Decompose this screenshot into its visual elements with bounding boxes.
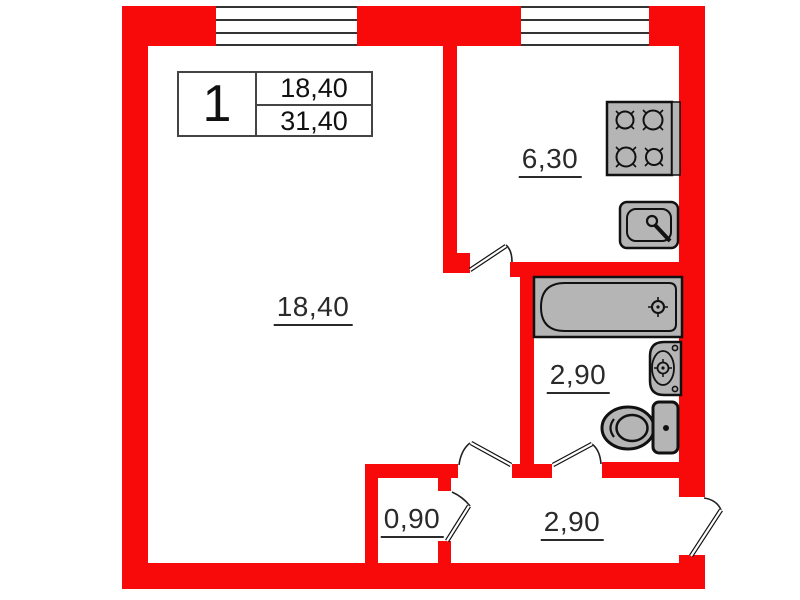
floor-plan: 1 18,40 31,40 18,40 6,30 2,90 2,90 0,90: [0, 0, 800, 600]
stove-icon: [607, 102, 680, 175]
fixtures-doors-layer: [0, 0, 800, 600]
kitchen-sink-icon: [620, 202, 678, 248]
entrance-door: [691, 498, 721, 556]
washbasin-icon: [650, 342, 681, 395]
toilet-icon: [602, 402, 678, 453]
bathtub-icon: [534, 277, 682, 337]
kitchen-door: [470, 245, 512, 270]
bathroom-door: [553, 444, 601, 465]
closet-door: [447, 492, 470, 541]
living-hall-door: [459, 443, 511, 465]
